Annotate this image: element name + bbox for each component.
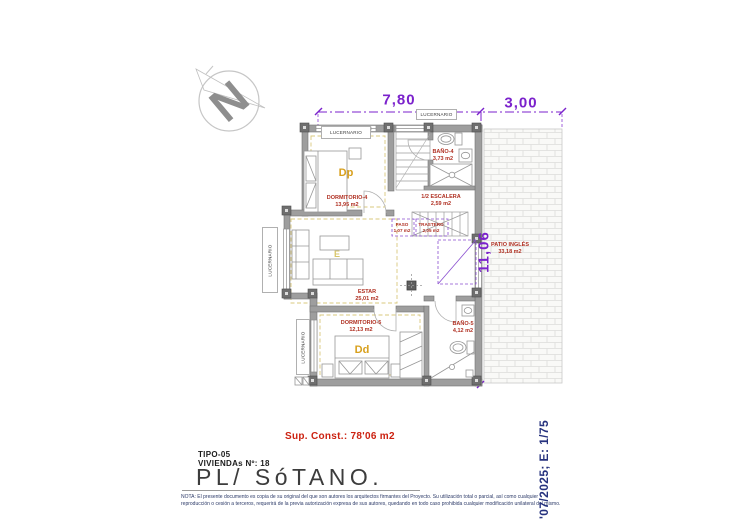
pillar: [400, 274, 424, 296]
skylight-label-top-right: LUCERNARIO: [416, 109, 457, 120]
furniture: [292, 133, 474, 385]
skylight-label-left: LUCERNARIO: [262, 227, 278, 293]
room-name: BAÑO-5: [452, 321, 473, 328]
room-label-dormitorio5: DORMITORIO-5 12,13 m2: [341, 320, 382, 334]
room-name: 1/2 ESCALERA: [421, 194, 460, 201]
room-name: ESTAR: [355, 289, 378, 296]
room-label-bano4: BAÑO-4 3,73 m2: [432, 149, 453, 163]
room-area: 13,95 m2: [327, 202, 368, 209]
coffee-table-estar: [320, 236, 349, 250]
built-area-label: Sup. Const.: 78'06 m2: [285, 431, 395, 442]
skylight-label-top-left: LUCERNARIO: [321, 126, 371, 139]
room-code-e: E: [334, 249, 340, 259]
skylight-label-text: LUCERNARIO: [330, 130, 362, 135]
sink-bano4: [459, 149, 472, 162]
sink-bano5: [462, 305, 474, 316]
skylight-label-text: LUCERNARIO: [301, 331, 306, 363]
dimension-top-patio-width: 3,00: [504, 93, 537, 113]
room-name: DORMITORIO-5: [341, 320, 382, 327]
shower-bano4: [430, 164, 472, 186]
room-area: 12,13 m2: [341, 327, 382, 334]
room-area: 3,73 m2: [432, 156, 453, 163]
drain-detail: [295, 377, 309, 385]
sofa-corner-estar: [292, 230, 309, 279]
room-area: 2,59 m2: [421, 201, 460, 208]
room-area: 2,05 m2: [418, 228, 443, 234]
room-label-trastero: TRASTERO 2,05 m2: [418, 222, 443, 234]
room-label-dormitorio4: DORMITORIO-4 13,95 m2: [327, 195, 368, 209]
shower-bano5: [431, 352, 474, 378]
room-name: PATIO INGLÉS: [491, 242, 529, 249]
type-label: TIPO-05: [198, 450, 230, 459]
skylight-label-text: LUCERNARIO: [420, 112, 452, 117]
room-area: 1,07 m2: [394, 228, 411, 234]
date-scale-vertical: '07/2025; E: 1/75: [537, 420, 551, 519]
wardrobe-dormitorio5: [400, 332, 422, 378]
room-label-bano5: BAÑO-5 4,12 m2: [452, 321, 473, 335]
toilet-bano5: [450, 341, 474, 354]
skylight-label-bottom-left: LUCERNARIO: [296, 319, 310, 375]
title-divider-line: [182, 490, 420, 491]
dimension-top-width: 7,80: [382, 90, 415, 110]
plan-title: PL/ SóTANO.: [196, 464, 383, 491]
room-code-dp: Dp: [339, 167, 354, 179]
room-area: 4,12 m2: [452, 328, 473, 335]
room-name: DORMITORIO-4: [327, 195, 368, 202]
room-label-paso: PASO 1,07 m2: [394, 222, 411, 234]
room-area: 25,01 m2: [355, 296, 378, 303]
north-compass-icon: N: [196, 66, 265, 132]
room-label-escalera: 1/2 ESCALERA 2,59 m2: [421, 194, 460, 208]
toilet-bano4: [438, 133, 462, 145]
copyright-note: NOTA: El presente documento es copia de …: [181, 494, 561, 509]
room-code-dd: Dd: [355, 344, 370, 356]
bed-dormitorio5: [322, 336, 402, 378]
room-label-patio-ingles: PATIO INGLÉS 33,18 m2: [491, 242, 529, 256]
room-area: 33,18 m2: [491, 249, 529, 256]
floorplan-page: N 7,80 3,00 11,06 LUCERNARIO LUCERNARIO …: [0, 0, 756, 528]
skylight-label-text: LUCERNARIO: [268, 244, 273, 276]
room-label-estar: ESTAR 25,01 m2: [355, 289, 378, 303]
floorplan-drawing: N: [0, 0, 756, 528]
room-name: BAÑO-4: [432, 149, 453, 156]
sofa-estar: [313, 259, 363, 285]
